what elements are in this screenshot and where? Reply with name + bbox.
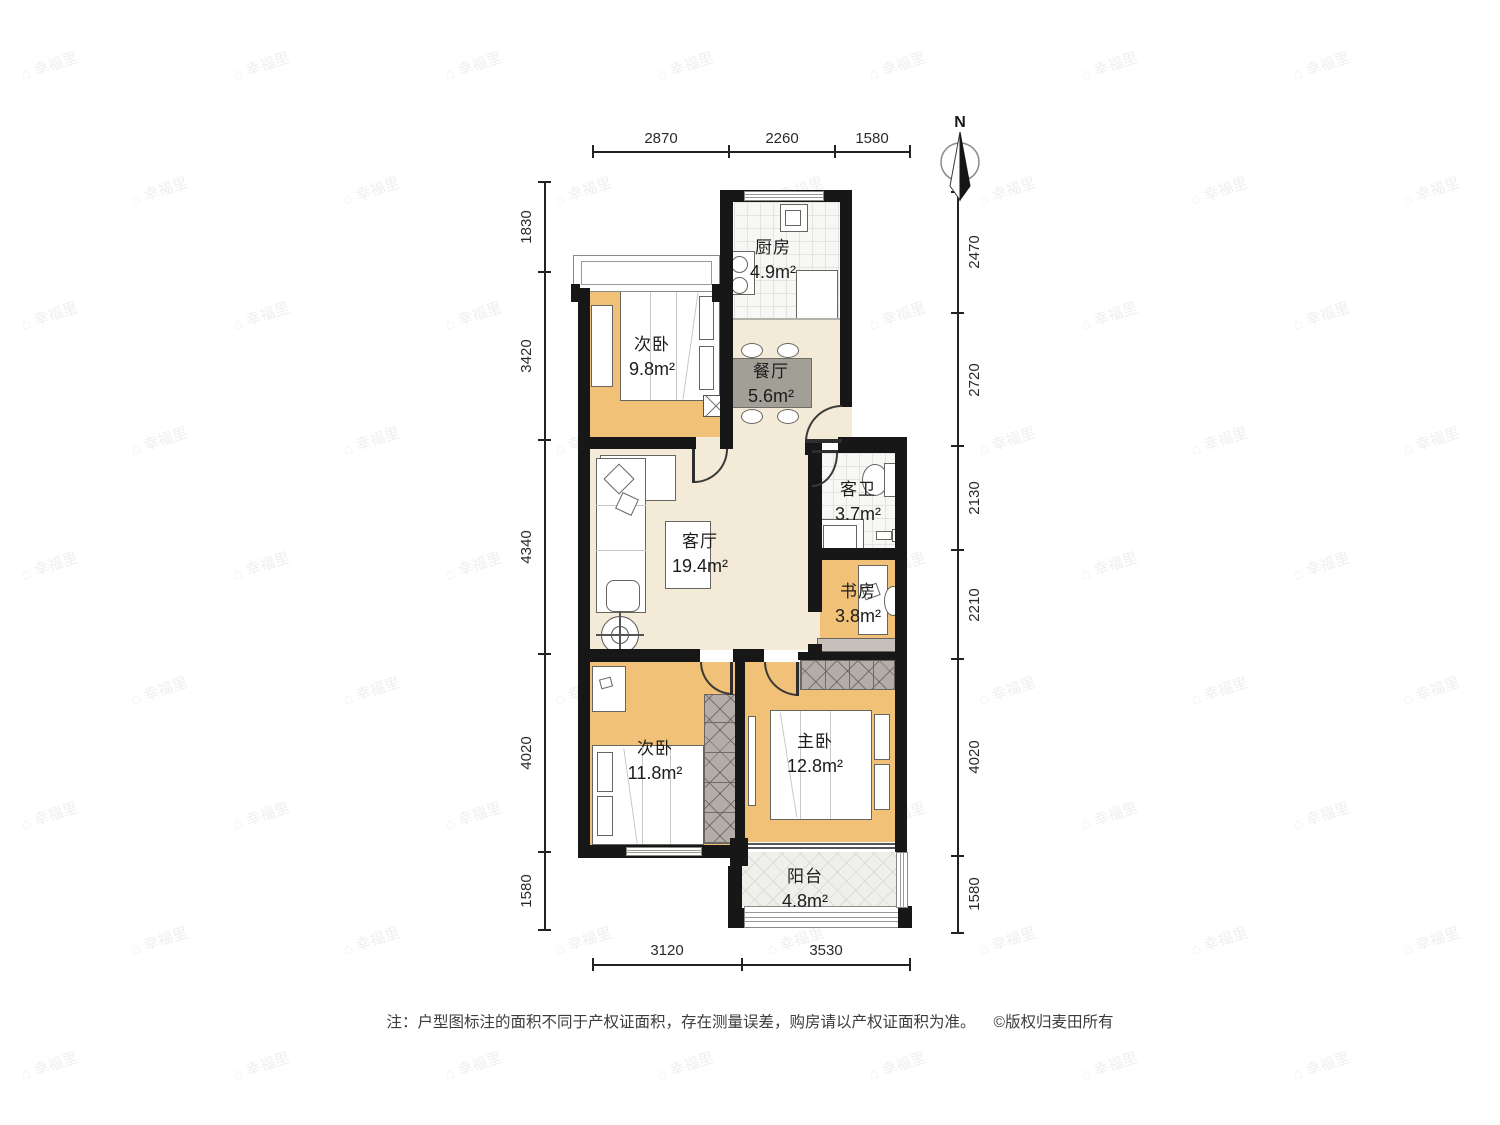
room-area: 3.8m² [813,604,903,628]
watermark: ⌂ 幸福里 [230,1047,292,1085]
sliding-door-line [748,843,897,845]
dim-tick [538,181,551,183]
room-area: 4.9m² [728,260,818,284]
wall-segment [578,437,696,449]
dim-tick [951,932,964,934]
watermark: ⌂ 幸福里 [1078,547,1140,585]
watermark: ⌂ 幸福里 [1400,672,1462,710]
bedroom-desk [592,666,626,712]
wall-segment [578,449,590,654]
kitchen-threshold [733,318,840,320]
bay-window-inner [581,261,712,285]
room-name: 主卧 [770,731,860,754]
watermark: ⌂ 幸福里 [128,422,190,460]
room-label-dining: 餐厅 5.6m² [726,361,816,408]
pillow [874,714,890,760]
dim-tick [538,271,551,273]
dim-tick [592,958,594,971]
dim-label: 3530 [776,942,876,959]
watermark: ⌂ 幸福里 [1290,297,1352,335]
room-name: 客厅 [655,531,745,554]
room-label-bedroom-small: 次卧 9.8m² [607,334,697,381]
pillow [699,296,714,340]
wall-segment [720,190,733,449]
dim-label: 1580 [518,863,536,919]
dining-chair [741,343,763,358]
watermark: ⌂ 幸福里 [340,672,402,710]
wall-segment [838,437,907,453]
room-name: 客卫 [813,479,903,502]
room-name: 阳台 [760,866,850,889]
wall-segment [733,649,764,662]
dim-label: 2870 [611,130,711,147]
wall-segment [578,288,590,449]
watermark: ⌂ 幸福里 [552,172,614,210]
pillow [597,796,613,836]
room-label-guest-bath: 客卫 3.7m² [813,479,903,526]
dining-chair [777,409,799,424]
dim-line-top [593,151,910,153]
watermark: ⌂ 幸福里 [1400,422,1462,460]
footer-copyright: ©版权归麦田所有 [994,1010,1114,1032]
wall-segment [712,284,721,302]
watermark: ⌂ 幸福里 [1290,547,1352,585]
master-wardrobe [800,660,895,690]
watermark: ⌂ 幸福里 [230,547,292,585]
watermark: ⌂ 幸福里 [340,172,402,210]
dim-label: 1580 [822,130,922,147]
wall-segment [808,548,907,560]
room-area: 9.8m² [607,357,697,381]
window [744,191,824,201]
watermark: ⌂ 幸福里 [1188,922,1250,960]
watermark: ⌂ 幸福里 [230,797,292,835]
watermark: ⌂ 幸福里 [128,172,190,210]
watermark: ⌂ 幸福里 [18,1047,80,1085]
dim-label: 2260 [732,130,832,147]
wall-segment [840,190,852,407]
dim-tick [741,958,743,971]
watermark: ⌂ 幸福里 [442,547,504,585]
watermark: ⌂ 幸福里 [866,297,928,335]
wall-segment [898,906,912,928]
dim-tick [538,439,551,441]
dim-tick [951,549,964,551]
room-area: 19.4m² [655,554,745,578]
watermark: ⌂ 幸福里 [18,47,80,85]
watermark: ⌂ 幸福里 [18,547,80,585]
footer-note-row: 注：户型图标注的面积不同于产权证面积，存在测量误差，购房请以产权证面积为准。 ©… [0,1010,1500,1032]
dining-chair [777,343,799,358]
dim-label: 4340 [518,519,536,575]
dim-tick [951,445,964,447]
room-label-master: 主卧 12.8m² [770,731,860,778]
dim-label: 3120 [617,942,717,959]
dim-tick [538,929,551,931]
watermark: ⌂ 幸福里 [866,47,928,85]
dim-line-bottom [593,964,910,966]
master-door-leaf [796,662,799,696]
kitchen-sink-basin [785,210,801,226]
dim-label: 1830 [518,199,536,255]
bedroom-mid-door-leaf [730,662,733,695]
room-area: 12.8m² [770,754,860,778]
watermark: ⌂ 幸福里 [654,1047,716,1085]
bath-faucet [876,531,892,540]
watermark: ⌂ 幸福里 [976,922,1038,960]
floorplan-canvas: ⌂ 幸福里⌂ 幸福里⌂ 幸福里⌂ 幸福里⌂ 幸福里⌂ 幸福里⌂ 幸福里⌂ 幸福里… [0,0,1500,1125]
watermark: ⌂ 幸福里 [654,47,716,85]
watermark: ⌂ 幸福里 [976,672,1038,710]
room-area: 11.8m² [610,761,700,785]
room-area: 3.7m² [813,502,903,526]
watermark: ⌂ 幸福里 [1188,672,1250,710]
watermark: ⌂ 幸福里 [230,297,292,335]
dim-tick [909,958,911,971]
floor-hall [694,437,810,449]
wall-segment [798,652,907,660]
watermark: ⌂ 幸福里 [340,422,402,460]
watermark: ⌂ 幸福里 [128,672,190,710]
dim-label: 4020 [966,729,984,785]
wall-segment [728,908,744,928]
wall-segment [578,649,700,662]
watermark: ⌂ 幸福里 [1400,922,1462,960]
wall-segment [730,838,748,866]
dining-chair [741,409,763,424]
watermark: ⌂ 幸福里 [552,922,614,960]
bath-door-leaf [812,450,838,453]
dim-tick [951,855,964,857]
watermark: ⌂ 幸福里 [442,297,504,335]
dim-label: 2470 [966,224,984,280]
watermark: ⌂ 幸福里 [442,797,504,835]
dim-tick [728,145,730,158]
dim-line-left [544,182,546,930]
watermark: ⌂ 幸福里 [1078,797,1140,835]
dim-tick [951,312,964,314]
wall-segment [578,662,590,845]
sofa-cushion-line [596,550,646,551]
room-label-kitchen: 厨房 4.9m² [728,237,818,284]
room-label-study: 书房 3.8m² [813,581,903,628]
watermark: ⌂ 幸福里 [18,797,80,835]
dim-label: 2130 [966,470,984,526]
watermark: ⌂ 幸福里 [128,922,190,960]
wall-segment [728,866,742,912]
watermark: ⌂ 幸福里 [230,47,292,85]
room-name: 次卧 [610,738,700,761]
dim-tick [538,653,551,655]
watermark: ⌂ 幸福里 [976,422,1038,460]
room-label-bedroom-mid: 次卧 11.8m² [610,738,700,785]
dim-label: 4020 [518,725,536,781]
room-label-balcony: 阳台 4.8m² [760,866,850,913]
room-name: 厨房 [728,237,818,260]
room-area: 4.8m² [760,889,850,913]
room-name: 次卧 [607,334,697,357]
dim-line-right [957,192,959,933]
room-area: 5.6m² [726,384,816,408]
watermark: ⌂ 幸福里 [18,297,80,335]
footer-note: 注：户型图标注的面积不同于产权证面积，存在测量误差，购房请以产权证面积为准。 [387,1010,976,1032]
window [626,847,702,856]
dim-tick [951,658,964,660]
watermark: ⌂ 幸福里 [442,1047,504,1085]
watermark: ⌂ 幸福里 [1078,47,1140,85]
tv-panel [748,716,756,806]
sliding-door-line [748,847,897,849]
pillow [699,346,714,390]
dim-tick [592,145,594,158]
watermark: ⌂ 幸福里 [866,1047,928,1085]
dim-label: 2720 [966,352,984,408]
watermark: ⌂ 幸福里 [1078,297,1140,335]
bedroom-small-door-leaf [692,449,695,483]
watermark: ⌂ 幸福里 [1188,422,1250,460]
pillow [874,764,890,810]
watermark: ⌂ 幸福里 [1078,1047,1140,1085]
balcony-side-window [896,852,908,908]
watermark: ⌂ 幸福里 [1290,47,1352,85]
watermark: ⌂ 幸福里 [1290,1047,1352,1085]
room-name: 餐厅 [726,361,816,384]
watermark: ⌂ 幸福里 [340,922,402,960]
entry-door-leaf [805,439,842,443]
watermark: ⌂ 幸福里 [442,47,504,85]
dim-label: 3420 [518,328,536,384]
bedroom-wardrobe [704,694,736,844]
watermark: ⌂ 幸福里 [1400,172,1462,210]
dim-label: 2210 [966,577,984,633]
compass-icon [934,130,986,202]
study-wardrobe [817,638,897,652]
sofa-seat [606,580,640,612]
room-name: 书房 [813,581,903,604]
wall-segment [735,662,745,842]
dim-tick [538,851,551,853]
room-label-living: 客厅 19.4m² [655,531,745,578]
dim-label: 1580 [966,866,984,922]
watermark: ⌂ 幸福里 [1188,172,1250,210]
watermark: ⌂ 幸福里 [1290,797,1352,835]
